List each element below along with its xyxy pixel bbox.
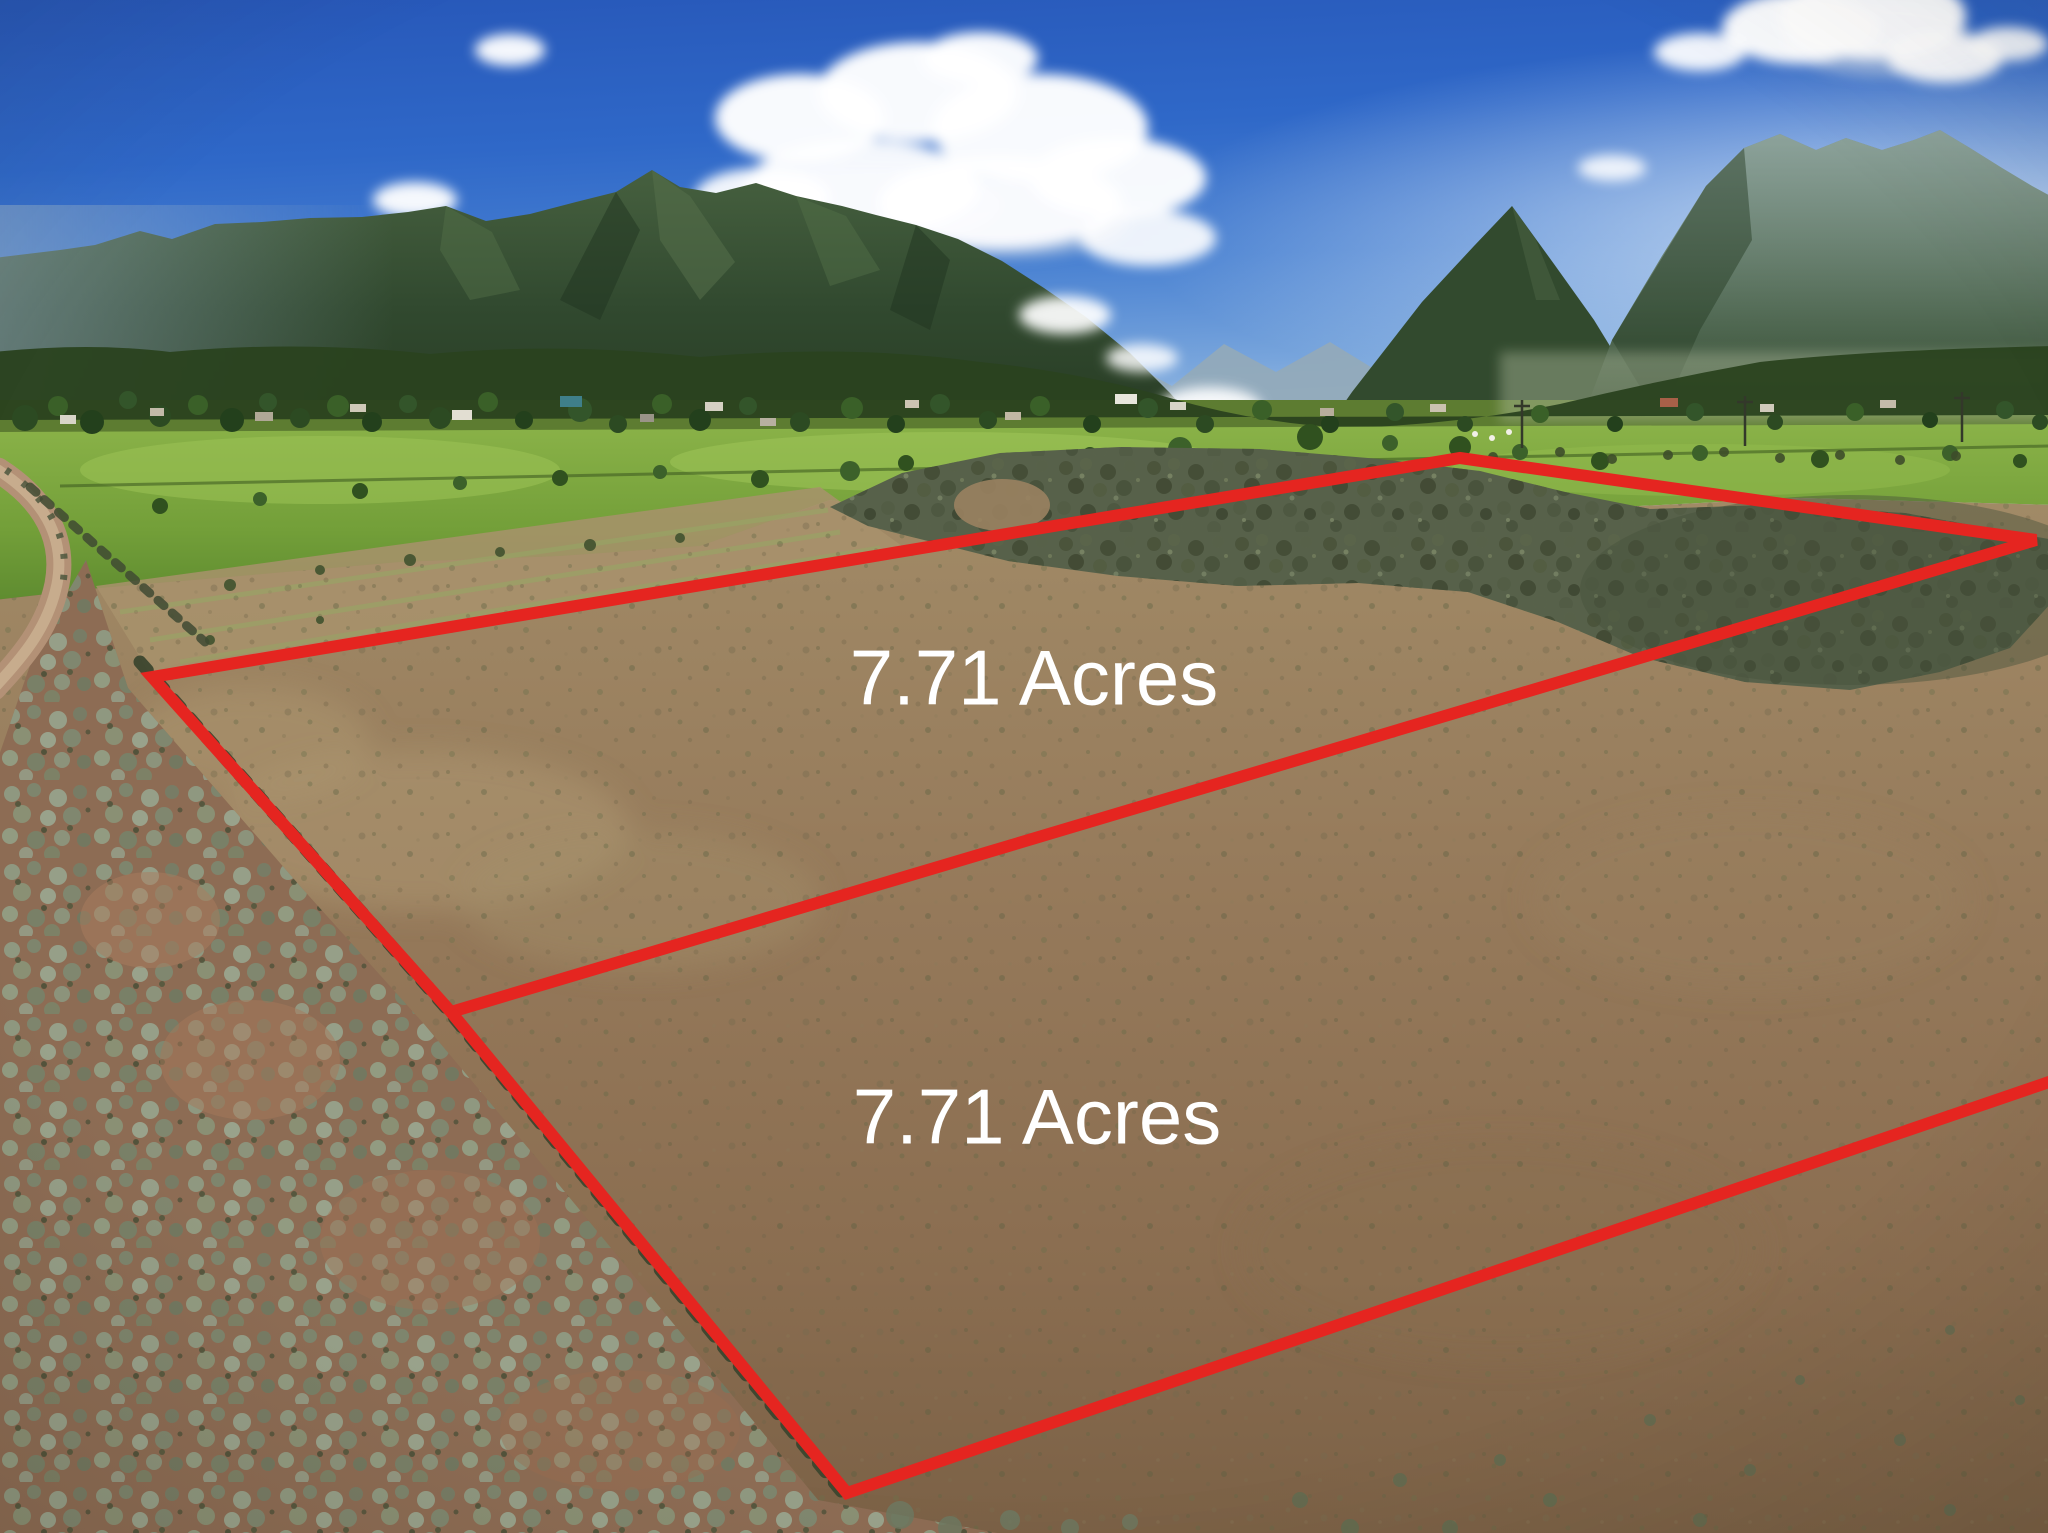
landscape-scene bbox=[0, 0, 2048, 1533]
aerial-parcel-photo: 7.71 Acres 7.71 Acres bbox=[0, 0, 2048, 1533]
parcel-label-upper: 7.71 Acres bbox=[850, 633, 1219, 724]
vignette-overlay bbox=[0, 0, 2048, 1533]
parcel-label-lower: 7.71 Acres bbox=[853, 1072, 1222, 1163]
